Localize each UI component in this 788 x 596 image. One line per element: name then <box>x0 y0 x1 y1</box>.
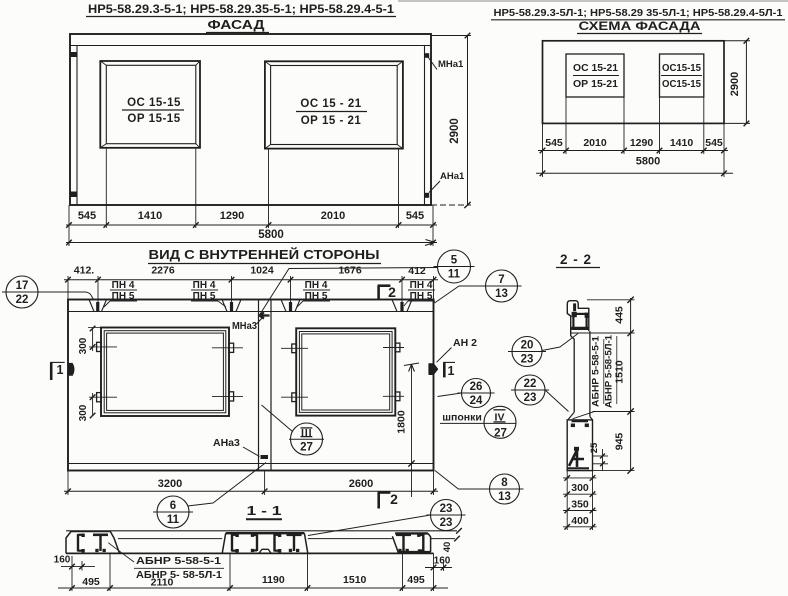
svg-text:495: 495 <box>82 576 100 588</box>
svg-text:445: 445 <box>614 306 626 324</box>
svg-text:23: 23 <box>440 503 453 515</box>
svg-text:НР5-58.29.3-5Л-1; НР5-58.29 35: НР5-58.29.3-5Л-1; НР5-58.29 35-5Л-1; НР5… <box>494 8 783 19</box>
svg-text:ПН 4: ПН 4 <box>410 280 433 291</box>
svg-text:6: 6 <box>170 500 176 512</box>
svg-text:300: 300 <box>78 404 89 421</box>
svg-text:1 - 1: 1 - 1 <box>247 504 282 518</box>
svg-text:ОР 15 - 21: ОР 15 - 21 <box>301 115 362 127</box>
svg-text:ВИД С ВНУТРЕННЕЙ СТОРОНЫ: ВИД С ВНУТРЕННЕЙ СТОРОНЫ <box>149 247 380 262</box>
svg-text:5800: 5800 <box>636 156 660 168</box>
svg-text:13: 13 <box>495 288 508 300</box>
svg-text:1676: 1676 <box>338 265 362 277</box>
svg-text:МНа3: МНа3 <box>232 321 257 332</box>
svg-text:8: 8 <box>501 477 508 489</box>
svg-text:АН 2: АН 2 <box>453 337 477 349</box>
svg-text:1: 1 <box>448 364 455 378</box>
svg-text:2010: 2010 <box>583 137 607 149</box>
svg-text:ПН 5: ПН 5 <box>410 291 433 302</box>
svg-text:ПН 5: ПН 5 <box>305 291 328 302</box>
svg-text:АБНР 5- 58-5Л-1: АБНР 5- 58-5Л-1 <box>136 569 222 581</box>
svg-text:1800: 1800 <box>396 410 408 434</box>
svg-text:400: 400 <box>571 515 589 527</box>
svg-text:495: 495 <box>407 574 425 586</box>
svg-text:1: 1 <box>57 363 64 377</box>
svg-text:3200: 3200 <box>158 478 182 490</box>
svg-text:27: 27 <box>300 442 313 454</box>
svg-text:ОС 15-21: ОС 15-21 <box>573 63 618 74</box>
svg-text:13: 13 <box>498 491 511 503</box>
svg-text:5800: 5800 <box>258 229 284 241</box>
svg-text:1510: 1510 <box>343 574 367 586</box>
svg-text:1290: 1290 <box>630 137 654 149</box>
svg-text:АБНР 5-58-5Л-1: АБНР 5-58-5Л-1 <box>604 335 614 408</box>
svg-text:25: 25 <box>589 442 600 453</box>
svg-text:945: 945 <box>614 433 626 451</box>
svg-text:11: 11 <box>167 514 180 526</box>
svg-text:АНа3: АНа3 <box>213 437 240 449</box>
svg-text:23: 23 <box>440 517 453 529</box>
svg-text:20: 20 <box>521 339 534 351</box>
svg-text:27: 27 <box>494 428 507 440</box>
svg-text:300: 300 <box>78 337 89 354</box>
svg-text:1510: 1510 <box>614 360 626 384</box>
svg-text:АБНР 5-58-5-1: АБНР 5-58-5-1 <box>591 336 601 407</box>
svg-text:АБНР 5-58-5-1: АБНР 5-58-5-1 <box>136 555 221 567</box>
svg-text:1410: 1410 <box>670 137 694 149</box>
svg-text:11: 11 <box>448 269 461 281</box>
svg-text:545: 545 <box>406 210 424 222</box>
svg-text:ПН 5: ПН 5 <box>193 291 216 302</box>
svg-text:ПН 5: ПН 5 <box>112 291 135 302</box>
svg-text:2: 2 <box>388 284 396 300</box>
svg-text:2110: 2110 <box>151 577 174 589</box>
svg-text:ПН 4: ПН 4 <box>193 280 216 291</box>
svg-text:545: 545 <box>545 137 563 149</box>
svg-text:ОС15-15: ОС15-15 <box>662 79 701 90</box>
svg-text:1024: 1024 <box>250 265 274 277</box>
svg-text:40: 40 <box>442 542 453 553</box>
svg-text:ПН 4: ПН 4 <box>112 280 135 291</box>
svg-text:ОС 15 - 21: ОС 15 - 21 <box>300 98 361 110</box>
svg-text:24: 24 <box>470 395 483 407</box>
svg-text:1290: 1290 <box>220 210 244 222</box>
svg-text:НР5-58.29.3-5-1; НР5-58.29.35-: НР5-58.29.3-5-1; НР5-58.29.35-5-1; НР5-5… <box>88 4 395 16</box>
svg-text:ОС 15-15: ОС 15-15 <box>127 97 181 109</box>
svg-text:2: 2 <box>390 491 398 507</box>
svg-text:шпонки: шпонки <box>442 412 482 424</box>
svg-text:412.: 412. <box>74 265 95 277</box>
svg-text:ОР 15-21: ОР 15-21 <box>573 79 618 90</box>
svg-text:1190: 1190 <box>262 574 285 586</box>
svg-text:2600: 2600 <box>349 478 373 490</box>
svg-text:545: 545 <box>705 137 723 149</box>
svg-text:412: 412 <box>408 265 426 277</box>
svg-text:160: 160 <box>54 555 71 566</box>
svg-text:23: 23 <box>521 354 534 366</box>
svg-text:СХЕМА ФАСАДА: СХЕМА ФАСАДА <box>579 19 701 33</box>
svg-text:ПН 4: ПН 4 <box>305 280 328 291</box>
svg-text:2900: 2900 <box>449 118 461 144</box>
svg-text:17: 17 <box>16 280 29 292</box>
svg-text:7: 7 <box>498 274 504 286</box>
svg-text:МНа1: МНа1 <box>438 59 464 70</box>
svg-text:26: 26 <box>470 381 483 393</box>
svg-text:22: 22 <box>16 294 29 306</box>
svg-text:300: 300 <box>571 482 589 494</box>
svg-text:ОС15-15: ОС15-15 <box>662 63 701 74</box>
svg-text:2276: 2276 <box>151 265 175 277</box>
svg-text:350: 350 <box>571 498 589 510</box>
svg-text:2010: 2010 <box>321 210 345 222</box>
svg-text:ФАСАД: ФАСАД <box>208 18 265 32</box>
svg-text:545: 545 <box>78 210 96 222</box>
svg-text:1410: 1410 <box>138 210 162 222</box>
svg-text:ОР 15-15: ОР 15-15 <box>127 113 180 125</box>
svg-text:2 - 2: 2 - 2 <box>560 252 592 267</box>
svg-text:23: 23 <box>524 392 537 404</box>
svg-text:5: 5 <box>451 254 458 266</box>
svg-text:22: 22 <box>524 378 537 390</box>
svg-text:2900: 2900 <box>729 72 741 96</box>
svg-text:АНа1: АНа1 <box>440 171 465 182</box>
